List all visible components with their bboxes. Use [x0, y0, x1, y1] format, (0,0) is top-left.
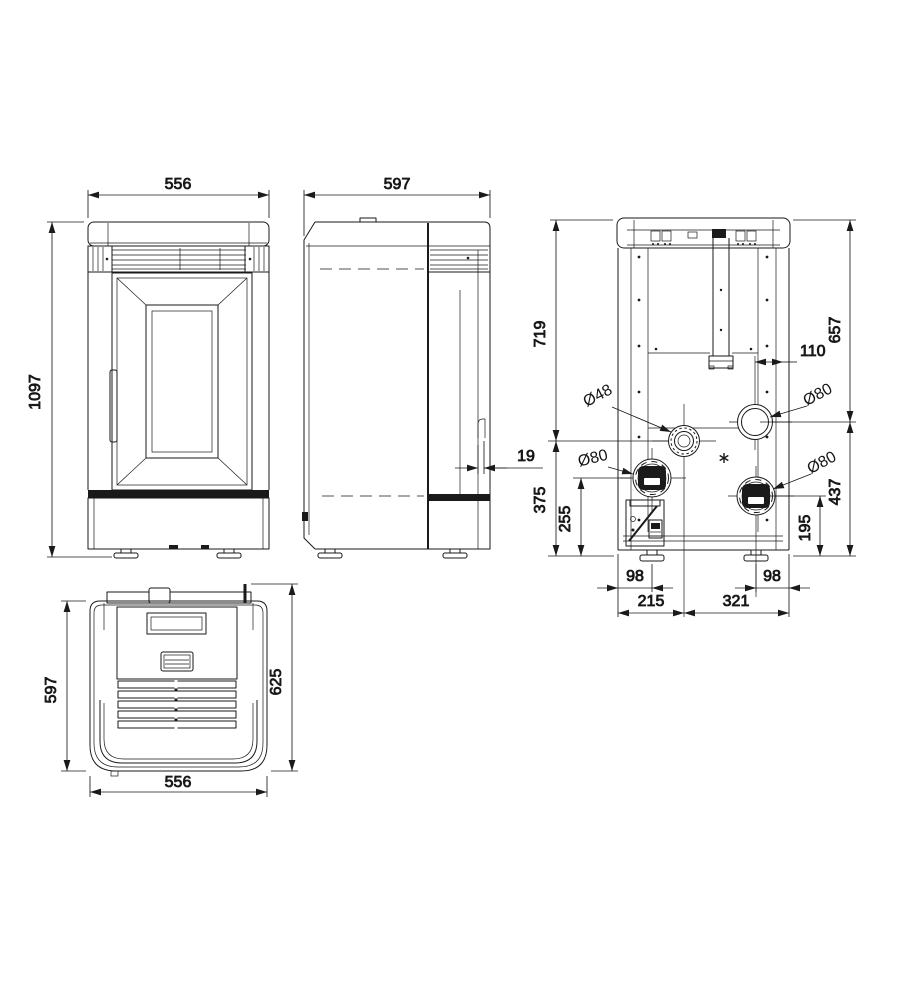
- dim-rear-span-left-label: 215: [638, 593, 665, 610]
- port-top-right-diameter-label: Ø80: [801, 380, 836, 409]
- front-hearth-band: [88, 490, 269, 498]
- front-base: [88, 498, 269, 549]
- front-door-glass: [152, 311, 212, 452]
- front-foot-right: [217, 549, 241, 558]
- rear-control-box: [626, 500, 664, 546]
- stove-technical-drawing: 556 1097: [0, 0, 900, 1000]
- side-front-edge: [304, 222, 315, 549]
- dim-rear-clearance: 19: [455, 441, 543, 474]
- dim-rear-left-port-height-label: 255: [557, 506, 574, 533]
- top-grille-slats: [118, 680, 236, 729]
- front-door-handle: [110, 370, 117, 442]
- rear-star-mark: [720, 453, 729, 463]
- port-bottom-right-diameter-label: Ø80: [805, 448, 840, 477]
- side-door-latch: [302, 512, 308, 521]
- dim-rear-port-offset-label: 110: [800, 343, 826, 360]
- dim-rear-right-lower-label: 437: [827, 479, 844, 506]
- port-left-diameter-callout: Ø80: [576, 447, 633, 474]
- rear-view: [617, 218, 794, 617]
- dim-rear-span-right-label: 321: [723, 593, 750, 610]
- dim-rear-span-left: 215: [618, 593, 684, 613]
- dim-front-width-label: 556: [165, 176, 192, 193]
- port-left-diameter-label: Ø80: [576, 447, 610, 471]
- side-foot-rear: [443, 549, 467, 558]
- dim-rear-span-right: 321: [684, 593, 789, 613]
- dim-top-total-depth: 625: [251, 584, 298, 771]
- front-view: [88, 222, 269, 558]
- dim-rear-left-upper: 719: [532, 220, 668, 441]
- dim-top-width: 556: [90, 774, 267, 797]
- top-control-display: [147, 613, 206, 634]
- side-view: [302, 218, 490, 558]
- dim-rear-port-offset: 110: [755, 343, 826, 362]
- dim-rear-left-port-height: 255: [557, 478, 631, 556]
- dim-rear-right-upper-label: 657: [827, 317, 844, 344]
- top-front-band: [100, 700, 257, 763]
- dim-rear-right-port-height-label: 195: [797, 515, 814, 542]
- dim-top-width-label: 556: [165, 774, 192, 791]
- dim-rear-left-lower-label: 375: [532, 487, 549, 514]
- front-top-cap: [88, 222, 269, 246]
- rear-foot-left: [640, 550, 664, 561]
- rear-port-top-right: [729, 356, 792, 450]
- dim-front-height-label: 1097: [27, 374, 44, 410]
- rear-hinge-bracket-left: [651, 231, 671, 245]
- dim-top-depth: 597: [43, 601, 86, 771]
- side-hearth-band: [428, 494, 490, 501]
- side-grille: [428, 250, 490, 272]
- dim-rear-left-upper-label: 719: [532, 321, 549, 348]
- dim-side-depth-label: 597: [384, 176, 411, 193]
- drawing-sheet: 556 1097: [0, 0, 900, 1000]
- rear-flue-fitting: [669, 426, 700, 457]
- flue-diameter-callout: Ø48: [581, 381, 671, 432]
- front-door: [110, 273, 252, 490]
- port-top-right-diameter-callout: Ø80: [770, 380, 835, 417]
- dim-side-depth: 597: [304, 176, 490, 236]
- rear-hinge-bracket-right: [736, 231, 756, 245]
- dim-top-depth-label: 597: [43, 677, 60, 704]
- dim-rear-clearance-label: 19: [517, 448, 535, 465]
- rear-top-cap: [617, 218, 790, 248]
- top-lid-handle: [161, 652, 193, 671]
- front-foot-left: [114, 549, 138, 558]
- flue-diameter-label: Ø48: [581, 381, 616, 410]
- rear-lid-latch: [712, 229, 726, 238]
- rear-loading-duct: [709, 238, 733, 369]
- top-view: [90, 584, 267, 776]
- side-foot-front: [318, 549, 342, 558]
- dim-front-width: 556: [88, 176, 269, 218]
- dim-rear-foot-left-label: 98: [626, 568, 644, 585]
- dim-rear-foot-right-label: 98: [763, 568, 781, 585]
- rear-port-bottom-right: [728, 466, 794, 597]
- side-rear-tab: [478, 419, 485, 438]
- front-grille: [88, 246, 269, 272]
- dim-top-total-depth-label: 625: [268, 669, 285, 696]
